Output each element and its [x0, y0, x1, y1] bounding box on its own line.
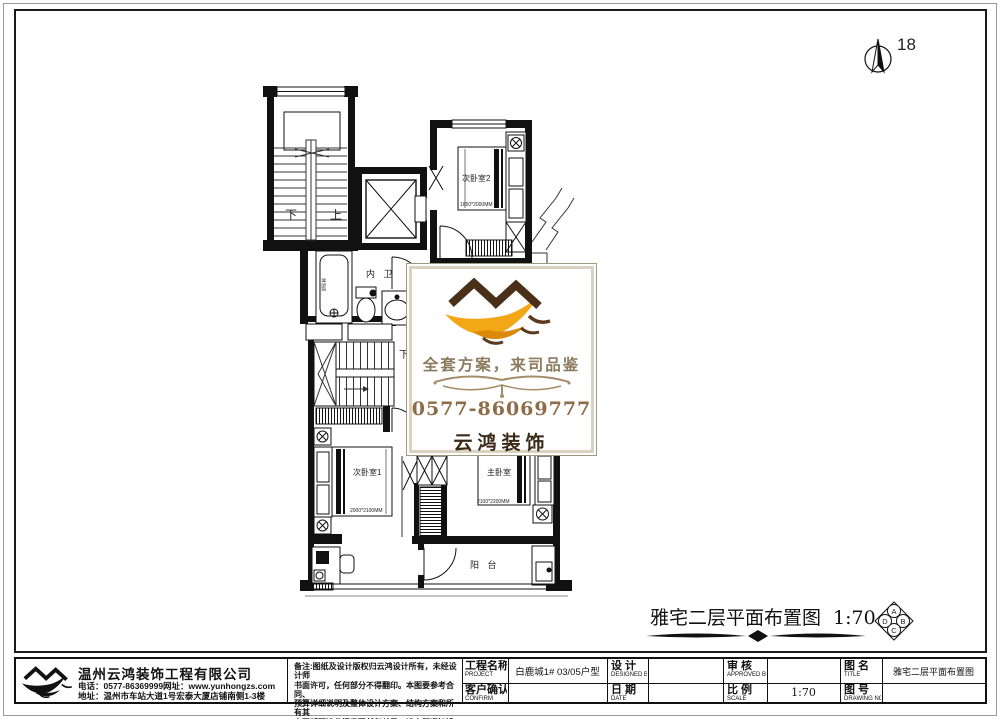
divider — [462, 659, 463, 702]
note-line: 备注:图纸及设计版权归云鸿设计所有，未经设计师 — [294, 662, 460, 681]
bedroom1-bed-dim: 2000*2100MM — [350, 508, 383, 514]
stair-down-label: 下 — [285, 208, 297, 222]
divider — [287, 659, 288, 702]
field-project-label: 工程名称 PROJECT — [465, 660, 507, 683]
plan-title-scale: 1:70 — [833, 607, 876, 629]
field-designed-label: 设 计 DESIGNED BY — [611, 660, 647, 683]
field-scale-value: 1:70 — [767, 683, 840, 702]
note-line: 预算详细说明及整体设计方案、结构方案和所有其 — [294, 699, 460, 718]
company-address: 地址：温州市车站大道1号宏泰大厦店铺南侧1-3楼 — [78, 690, 293, 702]
flourish-ornament — [427, 374, 577, 398]
title-block: 温州云鸿装饰工程有限公司 电话：0577-86369999网址：www.yunh… — [14, 657, 987, 704]
north-arrow: 18 — [865, 35, 916, 72]
copyright-notes: 备注:图纸及设计版权归云鸿设计所有，未经设计师 书面许可，任何部分不得翻印。本图… — [294, 662, 460, 719]
plan-title: 雅宅二层平面布置图1:70 — [650, 603, 876, 630]
bath-label: 内 卫 — [366, 268, 396, 279]
plan-title-text: 雅宅二层平面布置图 — [650, 607, 821, 629]
watermark-brand: 云鸿装饰 — [407, 428, 596, 455]
note-line: 书面许可，任何部分不得翻印。本图要参考合同、 — [294, 681, 460, 700]
divider — [607, 659, 608, 702]
master-bed-dim: 2100*2200MM — [477, 499, 510, 505]
orientation-c: C — [891, 626, 897, 635]
orientation-a: A — [891, 607, 896, 616]
field-project-value: 白鹿城1# 03/05户型 — [508, 659, 607, 683]
divider — [840, 659, 841, 702]
stair-up-label: 上 — [330, 208, 342, 222]
title-underline-ornament — [646, 630, 866, 642]
bedroom2-bed-dim: 1650*2000MM — [460, 202, 493, 208]
field-title-value: 雅宅二层平面布置图 — [882, 659, 985, 683]
master-label: 主卧室 — [487, 467, 511, 477]
tub-label: 淋浴房 — [320, 278, 327, 292]
field-approved-value — [767, 659, 840, 683]
orientation-symbol: A B C D — [875, 602, 913, 640]
field-scale-label: 比 例 SCALE — [727, 684, 766, 702]
field-confirm-value — [508, 683, 607, 702]
watermark-slogan: 全套方案，来司品鉴 — [407, 353, 596, 375]
drawing-sheet: 下 上 次卧室2 1650*2000MM 内 卫 淋浴房 下 次卧室1 2000… — [0, 0, 1000, 719]
watermark-box: 全套方案，来司品鉴 0577-86069777 云鸿装饰 — [406, 263, 597, 456]
field-approved-label: 审 核 APPROVED BY — [727, 660, 766, 683]
company-logo — [21, 663, 77, 701]
orientation-d: D — [882, 617, 888, 626]
brand-logo — [443, 272, 561, 350]
field-drawingno-value — [882, 683, 985, 702]
orientation-b: B — [900, 617, 905, 626]
field-title-label: 图 名 TITLE — [844, 660, 881, 683]
field-designed-value — [648, 659, 723, 683]
field-date-value — [648, 683, 723, 702]
field-confirm-label: 客户确认 CONFIRM — [465, 684, 507, 702]
watermark-phone: 0577-86069777 — [407, 398, 596, 420]
field-date-label: 日 期 DATE — [611, 684, 647, 702]
bedroom2-label: 次卧室2 — [462, 173, 491, 183]
sheet-number: 18 — [897, 35, 916, 54]
field-drawingno-label: 图 号 DRAWING NO — [844, 684, 881, 702]
balcony-label: 阳 台 — [470, 559, 500, 570]
divider — [723, 659, 724, 702]
bedroom1-label: 次卧室1 — [353, 467, 382, 477]
